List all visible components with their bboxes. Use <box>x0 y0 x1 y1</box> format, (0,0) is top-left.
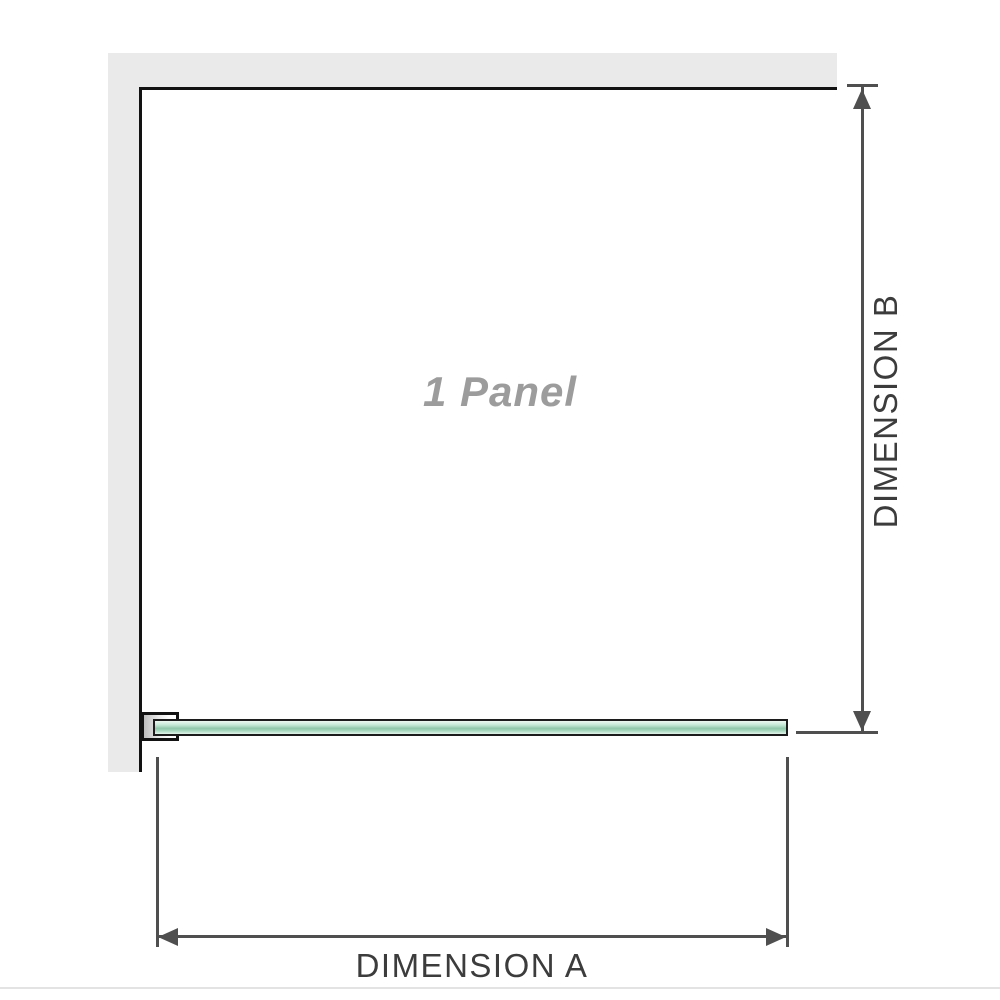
dimension-a-label: DIMENSION A <box>157 947 787 985</box>
glass-panel <box>153 719 788 736</box>
panel-dimension-diagram: 1 Panel DIMENSION B DIMENSION A <box>0 0 1000 1000</box>
dimension-b-label: DIMENSION B <box>867 261 901 561</box>
wall-inner-edge-vertical <box>139 87 142 772</box>
wall-left <box>108 53 139 772</box>
dimension-a-right-extension-line <box>786 757 789 947</box>
arrow-right-icon <box>766 928 786 946</box>
dimension-b-line <box>861 86 864 734</box>
panel-count-label: 1 Panel <box>350 368 650 416</box>
bottom-divider <box>0 987 1000 989</box>
wall-top <box>108 53 837 87</box>
arrow-left-icon <box>158 928 178 946</box>
dimension-b-top-tick <box>847 84 878 87</box>
arrow-down-icon <box>853 711 871 731</box>
arrow-up-icon <box>853 89 871 109</box>
wall-inner-edge-horizontal <box>139 87 837 90</box>
dimension-a-line <box>157 935 787 938</box>
dimension-b-bottom-tick <box>796 731 878 734</box>
dimension-a-left-extension-line <box>156 757 159 947</box>
